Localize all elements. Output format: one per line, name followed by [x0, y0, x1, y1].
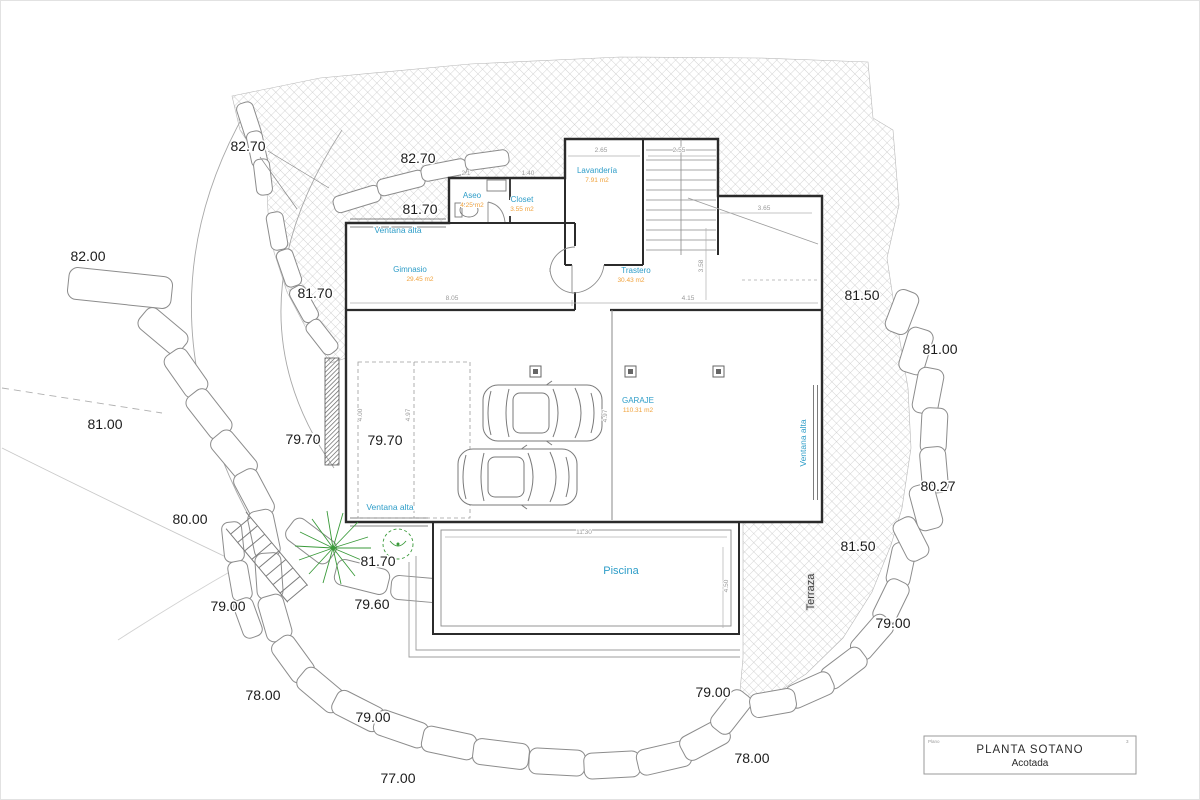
title-block-title: PLANTA SOTANO — [976, 744, 1083, 756]
elevation-label: 81.50 — [844, 287, 879, 303]
elevation-label: 79.00 — [210, 598, 245, 614]
elevation-label: 78.00 — [734, 750, 769, 766]
elevation-label: 81.00 — [922, 341, 957, 357]
car-icon — [458, 445, 577, 509]
room-area-gimnasio: 29.45 m2 — [406, 276, 433, 283]
dimension-label: 11.30 — [576, 529, 592, 536]
room-label-aseo: Aseo — [463, 191, 482, 200]
floor-plan-page: 82.70 82.70 81.70 82.00 81.70 81.50 81.0… — [0, 0, 1200, 800]
elevation-label: 82.70 — [230, 138, 265, 154]
elevation-label: 81.50 — [840, 538, 875, 554]
elevation-label: 81.70 — [297, 285, 332, 301]
ventana-alta-bottom-label: Ventana alta — [366, 502, 414, 512]
dimension-label: 2.55 — [673, 147, 686, 154]
elevation-label: 81.00 — [87, 416, 122, 432]
elevation-label: 80.00 — [172, 511, 207, 527]
car-icon — [483, 381, 602, 445]
room-area-trastero: 30.43 m2 — [617, 277, 644, 284]
title-block-left-note: Plano — [928, 739, 940, 744]
room-label-piscina: Piscina — [603, 565, 639, 577]
dimension-label: 4.97 — [405, 408, 412, 421]
ventana-alta-right-label: Ventana alta — [798, 419, 808, 467]
elevation-label: 81.70 — [402, 201, 437, 217]
dimension-label: 3.65 — [758, 205, 771, 212]
dimension-label: 4.50 — [723, 579, 730, 592]
elevation-label: 79.70 — [367, 432, 402, 448]
elevation-label: 79.00 — [355, 709, 390, 725]
room-label-garaje: GARAJE — [622, 396, 654, 405]
wall-section-hatch — [325, 358, 339, 465]
elevation-label: 79.00 — [695, 684, 730, 700]
elevation-label: 79.00 — [875, 615, 910, 631]
dimension-label: 4.00 — [357, 408, 364, 421]
elevation-label: 80.27 — [920, 478, 955, 494]
room-label-closet: Closet — [511, 195, 534, 204]
floor-plan-svg: 82.70 82.70 81.70 82.00 81.70 81.50 81.0… — [0, 0, 1200, 800]
dimension-label: 1.40 — [522, 170, 535, 177]
elevation-label: 81.70 — [360, 553, 395, 569]
dimension-label: 2.65 — [595, 147, 608, 154]
room-area-closet: 3.55 m2 — [510, 206, 534, 213]
room-label-lavanderia: Lavandería — [577, 166, 618, 175]
dimension-label: 8.05 — [446, 295, 459, 302]
terraza-label: Terraza — [805, 573, 817, 611]
dimension-label: 4.97 — [602, 409, 609, 422]
dimension-label: 2.1 — [461, 170, 470, 177]
elevation-label: 77.00 — [380, 770, 415, 786]
dimension-label: 3.58 — [698, 259, 705, 272]
elevation-label: 78.00 — [245, 687, 280, 703]
elevation-label: 79.60 — [354, 596, 389, 612]
ventana-alta-top-label: Ventana alta — [374, 225, 422, 235]
elevation-label: 82.00 — [70, 248, 105, 264]
elevation-label: 79.70 — [285, 431, 320, 447]
title-block-subtitle: Acotada — [1012, 758, 1049, 769]
room-area-lavanderia: 7.91 m2 — [585, 177, 609, 184]
room-area-garaje: 110.31 m2 — [623, 407, 654, 414]
title-block: PLANTA SOTANO Acotada Plano 3 — [924, 736, 1136, 774]
room-label-trastero: Trastero — [621, 266, 651, 275]
elevation-label: 82.70 — [400, 150, 435, 166]
room-label-gimnasio: Gimnasio — [393, 265, 427, 274]
room-area-aseo: 4.25 m2 — [460, 202, 484, 209]
dimension-label: 4.15 — [682, 295, 695, 302]
